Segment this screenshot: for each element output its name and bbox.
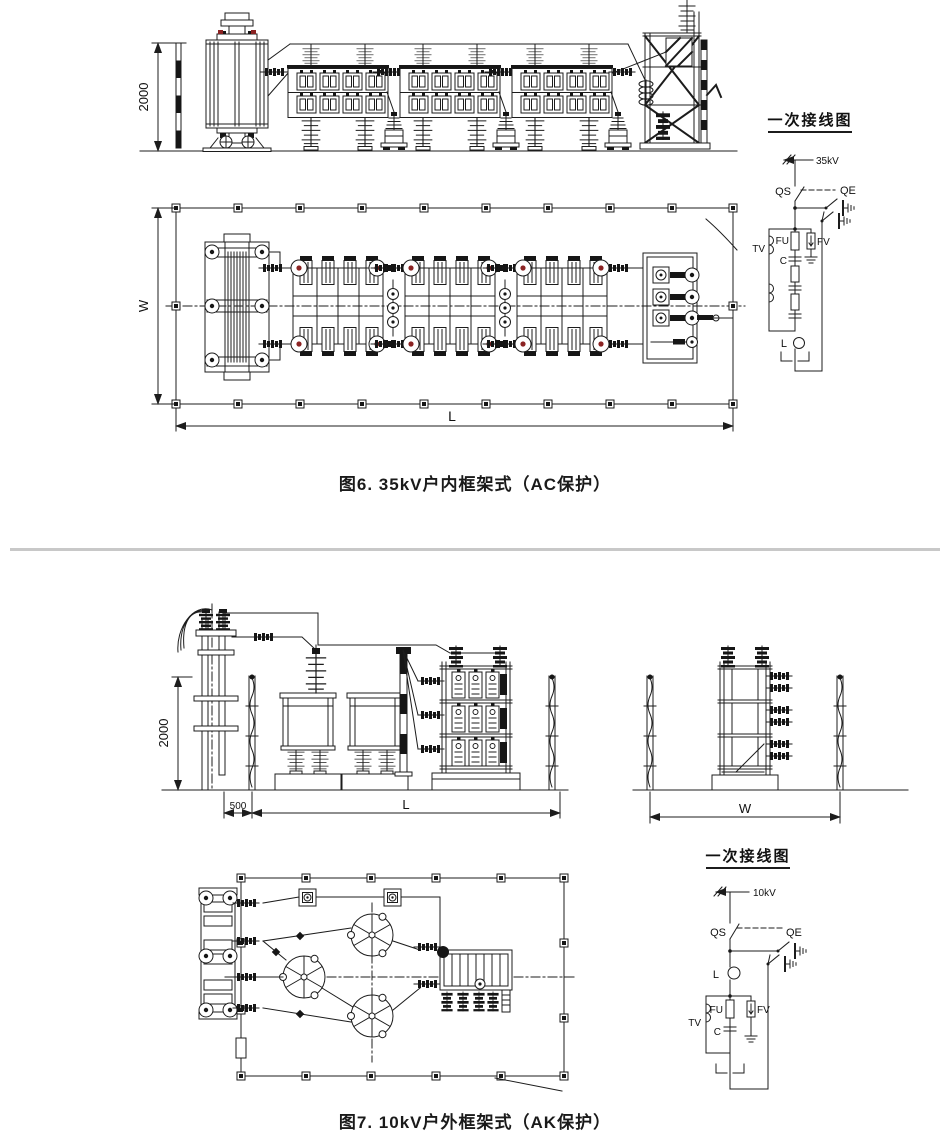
fig7-wiring-title: 一次接线图 — [705, 847, 790, 865]
fig7-plan-view — [199, 874, 575, 1091]
ground-symbol — [745, 1017, 757, 1042]
earth-switch-1-icon — [825, 199, 855, 215]
capacitor-rack-side — [712, 646, 792, 790]
fu-label: FU — [776, 236, 789, 247]
incoming-line-plan — [706, 219, 737, 250]
fence-post-left — [644, 675, 656, 790]
qe-label: QE — [786, 927, 802, 939]
discharge-device-plan-1 — [388, 280, 399, 336]
capacitor-rack-front — [418, 646, 520, 790]
fig6-plan-view: W L — [136, 204, 745, 431]
ct-loop-symbol — [728, 967, 740, 979]
dim-500-label: 500 — [230, 801, 247, 812]
qs-label: QS — [775, 186, 791, 198]
fig7-elevation-view: 2000 — [156, 604, 568, 818]
discharge-device-plan-2 — [500, 280, 511, 336]
fence-post-right — [834, 675, 846, 790]
reactor-plan-3 — [348, 994, 394, 1037]
figure7-drawing: 2000 — [0, 560, 950, 1105]
post-insulator-plan-2 — [384, 889, 401, 906]
section-divider — [10, 548, 940, 551]
dim-2000-label: 2000 — [136, 83, 151, 112]
fig7-offset-dimension: 500 — [224, 792, 252, 818]
earth-switch-1-icon — [777, 942, 807, 958]
gate-post — [236, 1038, 246, 1058]
incoming-voltage-label: 35kV — [816, 156, 839, 167]
fig6-elevation-view: 2000 — [136, 0, 737, 152]
end-frame-tower — [639, 0, 721, 149]
reactor-plan-2 — [280, 955, 326, 998]
bank-to-tower-wire — [613, 52, 666, 73]
fv-label: FV — [817, 237, 830, 248]
figure6-drawing: 2000 — [0, 0, 950, 460]
dim-l-label: L — [402, 797, 409, 812]
fig7-wiring-diagram: 一次接线图 10kV QS QE L FU C TV FV — [688, 847, 806, 1089]
reactor-tank-2 — [347, 693, 403, 774]
fu-label: FU — [710, 1005, 723, 1016]
dim-2000-label: 2000 — [156, 719, 171, 748]
striped-gauge-pole — [171, 43, 186, 148]
end-frame-tower-plan — [643, 253, 733, 363]
gate-swing-line — [495, 1078, 562, 1091]
post-insulator — [306, 645, 325, 693]
fence-post-right — [546, 675, 558, 790]
figure7-caption: 图7. 10kV户外框架式（AK保护） — [0, 1108, 950, 1133]
plan-wires — [263, 897, 440, 1022]
document-page: 2000 — [0, 0, 950, 1145]
reactor-plan-1 — [348, 913, 394, 956]
qs-label: QS — [710, 927, 726, 939]
fig6-wiring-title: 一次接线图 — [767, 111, 852, 129]
pedestal-1 — [275, 774, 341, 790]
ct-loop-symbol — [794, 338, 805, 349]
fig7-length-dimension: L — [252, 792, 560, 818]
fuse-symbol — [791, 232, 799, 250]
ground-symbol — [805, 249, 817, 263]
fig6-height-dimension: 2000 — [136, 43, 174, 151]
fig6-wiring-diagram: 一次接线图 35kV QS QE FU C TV FV — [752, 111, 856, 371]
fig7-side-view: W — [633, 646, 908, 823]
dim-w-label: W — [739, 801, 752, 816]
dim-w-label: W — [136, 299, 151, 312]
c-label: C — [714, 1027, 721, 1038]
tv-coil-symbol — [769, 236, 774, 302]
reactor-tank-1 — [280, 693, 336, 774]
earth-switch-2-icon — [821, 212, 851, 228]
c-label: C — [780, 256, 787, 267]
capacitor-rack-plan — [199, 888, 259, 1019]
post-insulator-plan-1 — [299, 889, 316, 906]
incoming-voltage-label: 10kV — [753, 888, 776, 899]
l-label: L — [781, 338, 787, 350]
fig7-height-dimension: 2000 — [156, 677, 192, 790]
dim-l-label: L — [448, 408, 456, 424]
fig7-width-dimension: W — [650, 792, 840, 823]
fuse-symbol — [726, 1000, 734, 1018]
series-reactor-plan — [205, 234, 269, 380]
tv-label: TV — [688, 1018, 701, 1029]
tv-label: TV — [752, 244, 765, 255]
earth-switch-2-icon — [767, 955, 797, 971]
fig6-length-dimension: L — [176, 408, 733, 431]
series-reactor-elevation — [203, 13, 290, 152]
qe-label: QE — [840, 185, 856, 197]
figure6-caption: 图6. 35kV户内框架式（AC保护） — [0, 470, 950, 495]
fence-post-left — [246, 675, 258, 790]
l-label: L — [713, 969, 719, 981]
